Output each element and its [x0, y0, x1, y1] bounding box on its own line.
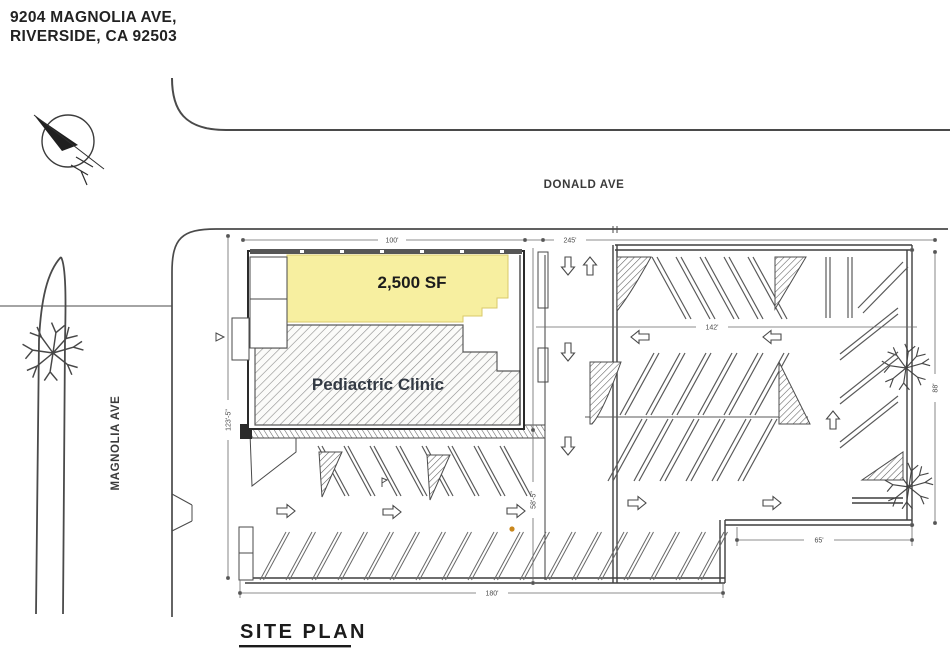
parking-stalls-west-top: [318, 446, 531, 496]
suite-area-label: 2,500 SF: [378, 273, 447, 292]
dim-building-width: 100': [385, 238, 398, 245]
address-line-1: 9204 MAGNOLIA AVE,: [10, 9, 177, 26]
traffic-arrow-icon: [383, 506, 401, 519]
caption-underline: [239, 645, 351, 647]
tree-icon: [882, 344, 930, 390]
traffic-arrow-icon: [827, 411, 840, 429]
dim-mid-depth: 58'-5": [531, 491, 538, 509]
traffic-arrow-icon: [763, 331, 781, 344]
traffic-arrow-icon: [507, 505, 525, 518]
parking-stalls-west-bottom: [260, 532, 728, 580]
dim-lower-right-width: 65': [814, 538, 823, 545]
traffic-arrow-icon: [763, 497, 781, 510]
traffic-arrow-icon: [277, 505, 295, 518]
entry-island: [250, 433, 296, 486]
north-arrow-icon: [34, 115, 104, 185]
site-plan-drawing: 9204 MAGNOLIA AVE, RIVERSIDE, CA 92503 D…: [0, 0, 950, 652]
traffic-arrow-icon: [562, 343, 575, 361]
landscape-islands: [590, 257, 903, 480]
traffic-arrow-icon: [584, 257, 597, 275]
dim-west-depth: 123'-5": [226, 409, 233, 431]
street-label-magnolia: MAGNOLIA AVE: [110, 396, 122, 491]
dim-lower-width: 180': [485, 591, 498, 598]
dim-donald-frontage: 245': [563, 238, 576, 245]
traffic-arrow-icon: [631, 331, 649, 344]
tree-icon: [23, 323, 84, 381]
west-structure: [239, 553, 253, 580]
accent-dot: [509, 526, 514, 531]
pointer-marker: [216, 333, 224, 341]
street-label-donald: DONALD AVE: [544, 179, 625, 191]
west-structure: [239, 527, 253, 553]
dim-east-depth: 88': [933, 383, 940, 392]
pole-marker: [382, 478, 387, 487]
drive-median: [538, 252, 548, 308]
parking-stalls-east-edge: [840, 308, 898, 448]
site-plan-page: 9204 MAGNOLIA AVE, RIVERSIDE, CA 92503 D…: [0, 0, 950, 652]
site-plan-caption: SITE PLAN: [240, 621, 367, 643]
traffic-arrow-icon: [628, 497, 646, 510]
drive-median: [538, 348, 548, 382]
clinic-label: Pediactric Clinic: [312, 375, 444, 394]
traffic-arrow-icon: [562, 257, 575, 275]
parking-stalls-east-middle: [585, 353, 808, 481]
traffic-arrow-icon: [562, 437, 575, 455]
dim-upper-aisle: 142': [705, 325, 718, 332]
address-line-2: RIVERSIDE, CA 92503: [10, 28, 177, 45]
